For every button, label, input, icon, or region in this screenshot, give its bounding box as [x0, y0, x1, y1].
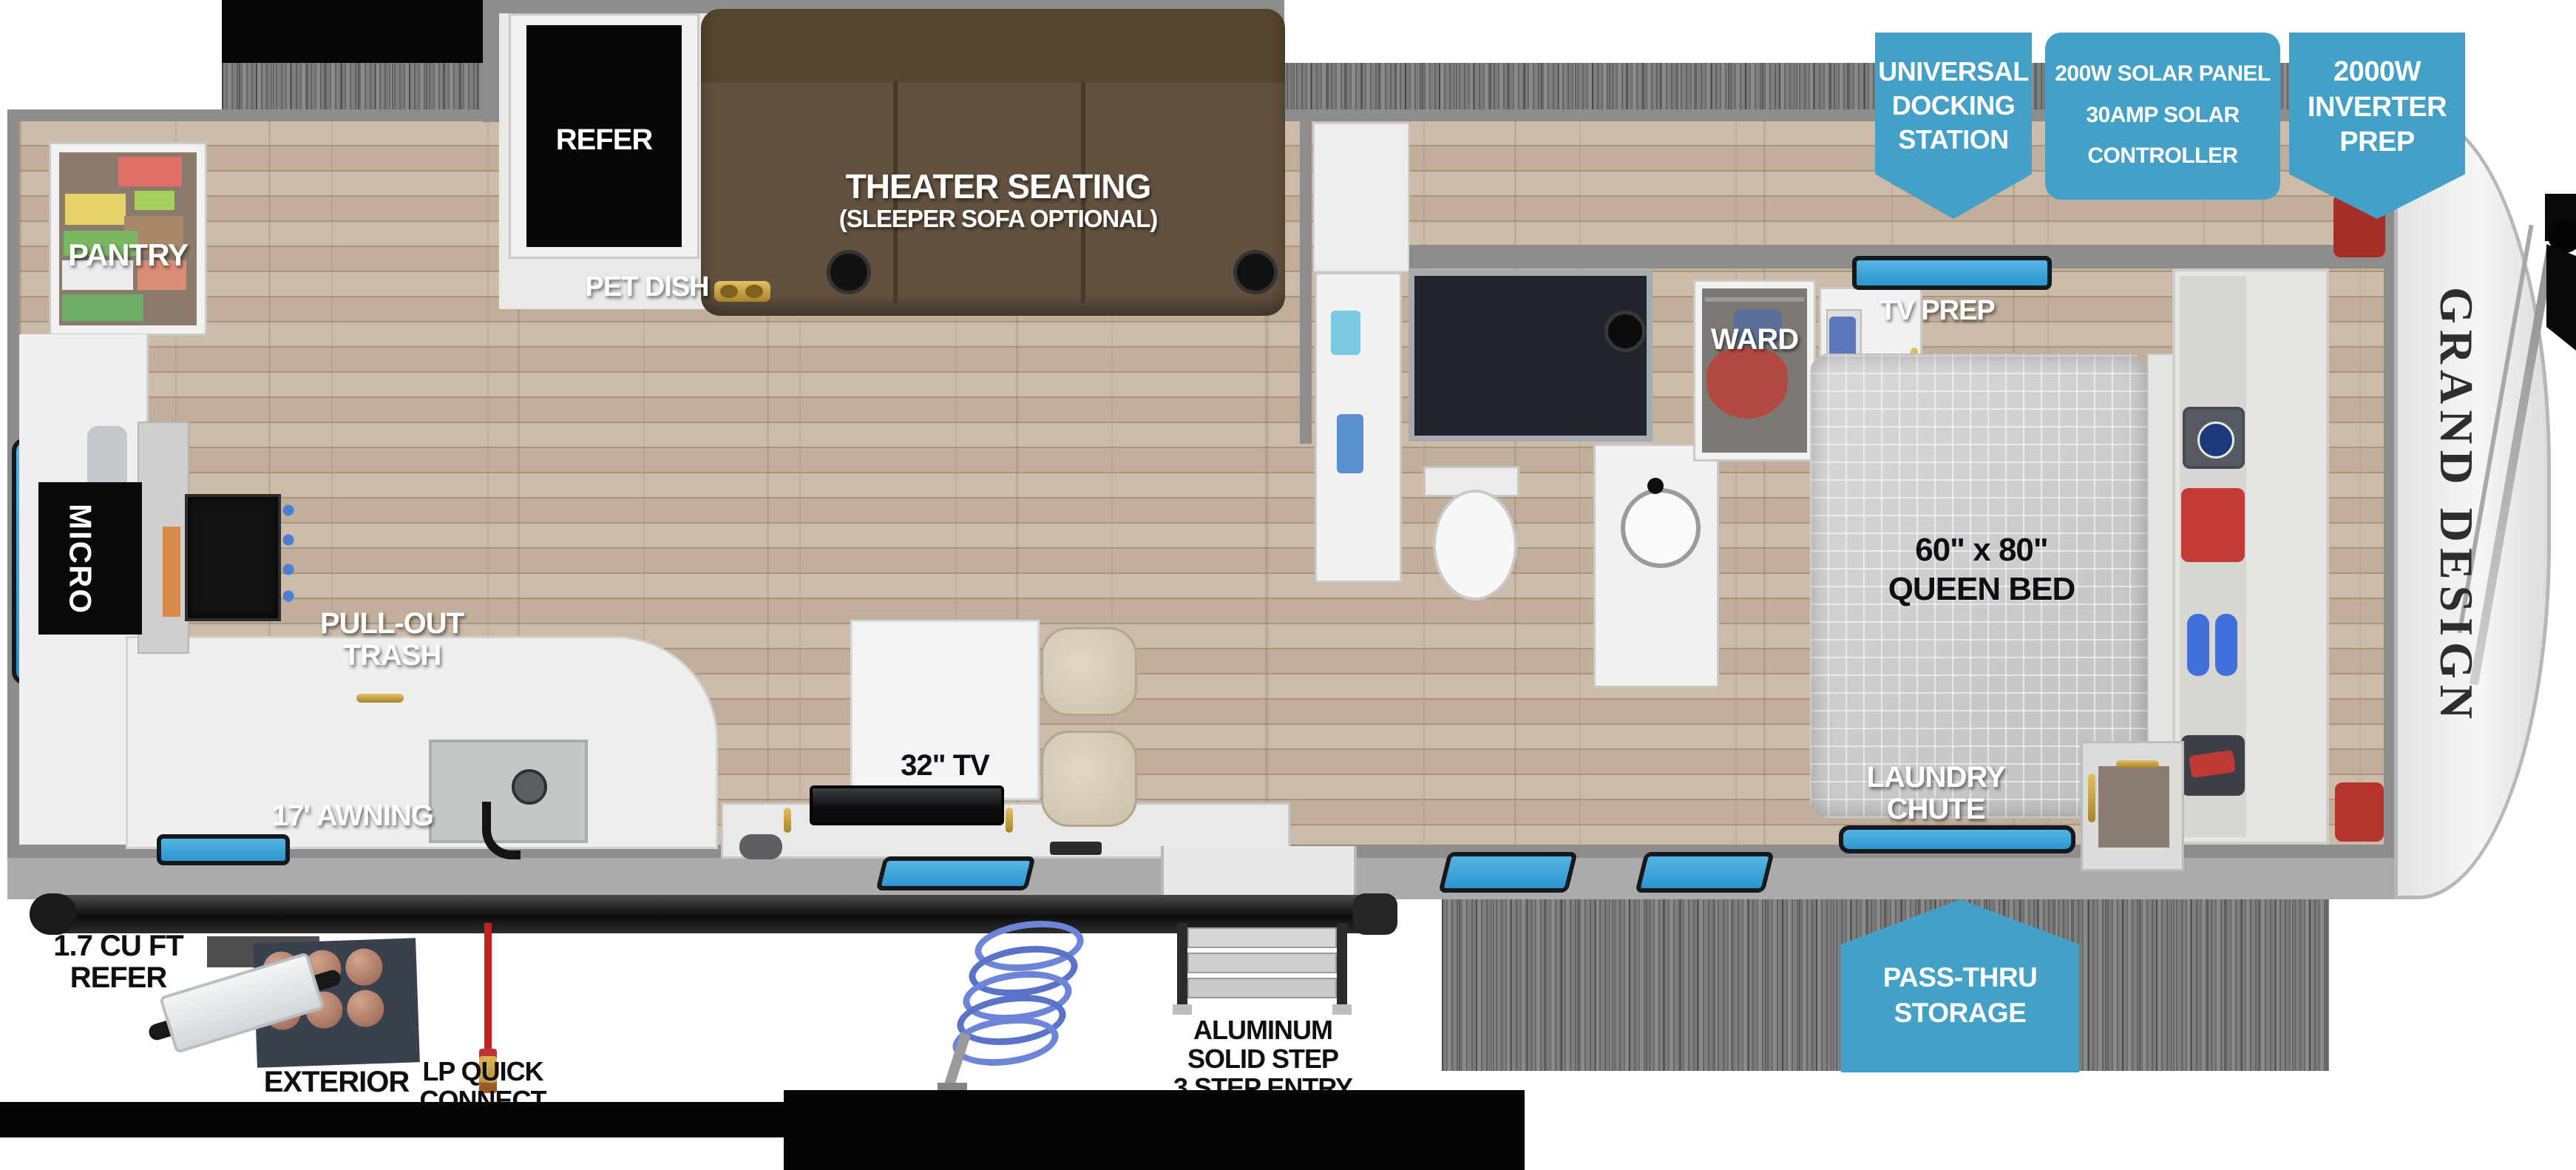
lp-hose	[484, 923, 492, 1050]
entry-steps-rail	[1177, 923, 1187, 1006]
cabinet-handle	[2116, 760, 2159, 768]
entry-step-tread	[1187, 927, 1337, 948]
awning-label: 17' AWNING	[260, 800, 445, 832]
egg	[345, 948, 383, 987]
bath-faucet	[1647, 478, 1664, 494]
bath-sink	[1621, 488, 1701, 568]
red-shirt	[2181, 488, 2245, 562]
pantry-box	[62, 294, 143, 321]
pull-out-trash-label: PULL-OUTTRASH	[296, 608, 488, 672]
cabinet-handle	[356, 694, 404, 703]
dinette-chair	[1041, 731, 1137, 827]
refer-label: REFER	[526, 124, 682, 156]
top-left-shadow	[222, 0, 487, 68]
console-handle	[1006, 808, 1013, 833]
hitch-frame	[2546, 244, 2576, 362]
toiletry	[1331, 311, 1360, 355]
stored-tools-red	[2335, 782, 2384, 842]
pantry-box	[65, 194, 126, 225]
awning-end-cap	[1353, 893, 1397, 935]
exterior-label: EXTERIOR	[259, 1066, 414, 1098]
shower-head	[1604, 311, 1646, 352]
laundry-chute-label: LAUNDRYCHUTE	[1847, 762, 2024, 825]
entry-step-foot	[1332, 1004, 1352, 1015]
entry-step-tread	[1187, 978, 1337, 998]
entry-door	[1161, 846, 1357, 899]
cabinet-handle	[2088, 774, 2095, 822]
nasa-logo	[2197, 422, 2234, 459]
sofa-speaker	[827, 250, 871, 294]
rv-floorplan: REFER THEATER SEATING (SLEEPER SOFA OPTI…	[0, 0, 2576, 1170]
laundry-window	[1839, 825, 2075, 853]
queen-bed-label: 60" x 80"QUEEN BED	[1863, 531, 2100, 609]
cabinet-opening	[2098, 766, 2169, 848]
pantry-label: PANTRY	[49, 238, 207, 271]
cooktop	[185, 494, 281, 621]
tv-label: 32" TV	[886, 750, 1004, 782]
shower	[1409, 270, 1653, 442]
pantry-box	[118, 157, 182, 186]
blue-shoe	[2215, 614, 2237, 676]
bottom-window	[875, 856, 1035, 890]
pantry-box	[135, 191, 174, 210]
tv-32	[810, 785, 1004, 825]
solar-package-badge: 200W SOLAR PANEL30AMP SOLARCONTROLLER	[2045, 33, 2280, 200]
ward-label: WARD	[1693, 324, 1816, 356]
sink-drain	[512, 769, 547, 805]
game-controller	[739, 834, 782, 859]
bath-wall	[1300, 121, 1312, 444]
cooktop-knobs	[282, 501, 294, 605]
console-handle	[784, 808, 791, 833]
kitchen-bottom-window	[157, 834, 290, 865]
glass-rack	[87, 426, 127, 490]
underbody-shadow	[0, 1102, 784, 1137]
underbody-shadow	[784, 1090, 1525, 1170]
hanger-bar	[1705, 297, 1804, 302]
bath-overhead-cabinet	[1313, 123, 1409, 272]
entry-step-tread	[1187, 953, 1337, 973]
bottom-window	[1635, 852, 1775, 893]
remote-control	[1050, 842, 1102, 855]
theater-seating-label: THEATER SEATING (SLEEPER SOFA OPTIONAL)	[762, 169, 1235, 231]
bedroom-window	[1852, 256, 2052, 290]
sofa-speaker	[1233, 250, 1278, 294]
toiletry	[1337, 414, 1363, 473]
toilet	[1433, 490, 1517, 601]
egg	[346, 990, 384, 1028]
entry-step-foot	[1173, 1004, 1192, 1015]
pet-dish-bowl	[745, 285, 763, 298]
micro-label: MICRO	[64, 500, 97, 618]
pet-dish-bowl	[720, 285, 738, 298]
theater-seating-sofa	[701, 9, 1285, 316]
dinette-chair	[1041, 627, 1137, 716]
awning-end-cap	[30, 893, 77, 935]
oven-handle	[163, 527, 180, 617]
tv-prep-label: TV PREP	[1863, 296, 2011, 326]
brand-logo: GRAND DESIGN	[2431, 180, 2482, 831]
blue-shoe	[2187, 614, 2209, 676]
entry-steps-rail	[1337, 923, 1347, 1006]
exterior-refer-label: 1.7 CU FTREFER	[37, 930, 200, 994]
pet-dish-label: PET DISH	[577, 272, 717, 302]
bottom-window	[1438, 852, 1578, 893]
hanging-clothes-red	[1706, 348, 1788, 419]
